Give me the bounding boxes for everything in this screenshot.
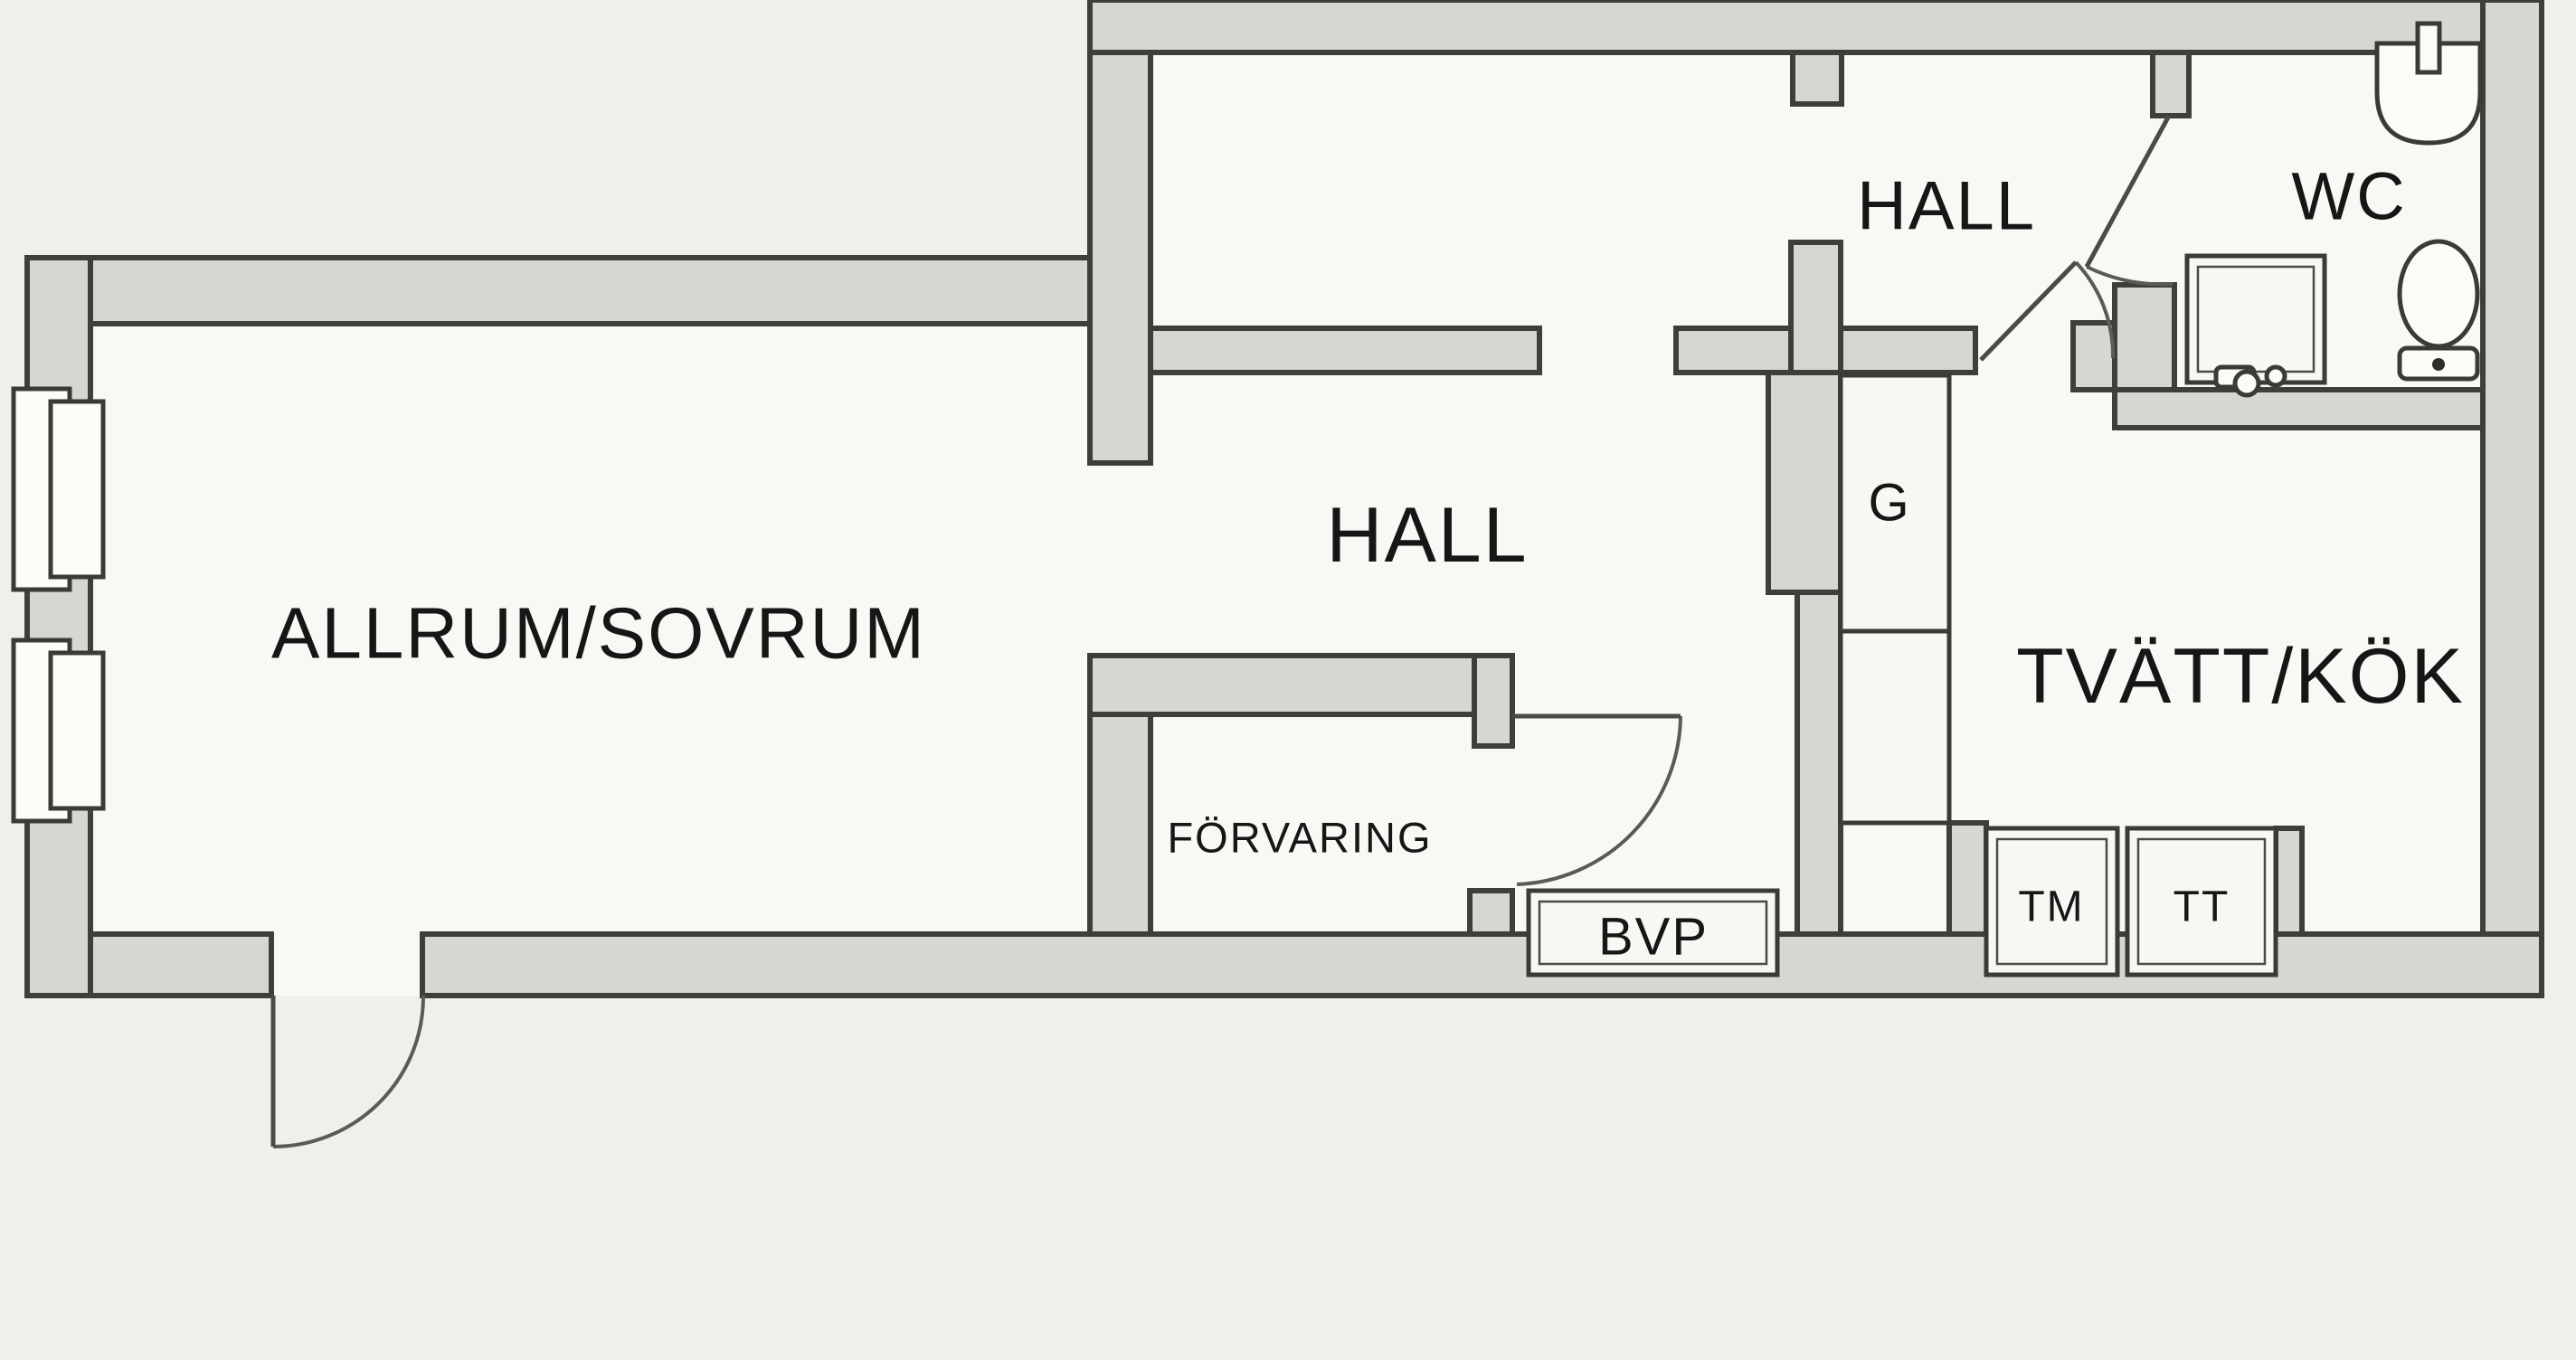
corridor-left-wall — [1090, 0, 1151, 463]
tvatt-door-jamb — [2073, 323, 2115, 390]
entrance-door-swing-arc — [273, 996, 423, 1147]
floorplan-page: ALLRUM/SOVRUMHALLHALLWCTVÄTT/KÖKFÖRVARIN… — [0, 0, 2576, 1360]
left-wall — [27, 258, 90, 996]
toilet-flush-icon — [2432, 358, 2445, 371]
top-wall-left — [27, 258, 1151, 324]
room-label-garderob: G — [1868, 474, 1910, 533]
shower — [2187, 256, 2325, 382]
room-label-hall-upper: HALL — [1857, 168, 2036, 245]
room-label-tvatt-kok: TVÄTT/KÖK — [2016, 633, 2465, 720]
g-closet-lower — [1841, 631, 1949, 823]
duct-notch — [1793, 52, 1842, 104]
room-label-forvaring: FÖRVARING — [1167, 814, 1432, 862]
shower-knob-icon — [2267, 367, 2285, 385]
forvaring-top-wall — [1090, 656, 1474, 714]
room-label-allrum-sovrum: ALLRUM/SOVRUM — [271, 593, 926, 674]
duct-wall-strip — [1797, 592, 1841, 934]
wc-bottom-wall — [2115, 390, 2483, 428]
toilet-bowl-icon — [2400, 241, 2477, 346]
tt-sliver-wall — [2276, 828, 2302, 934]
duct-wall-upper — [1791, 242, 1841, 373]
forvaring-door-jamb — [1474, 656, 1512, 746]
forvaring-right-wall — [1470, 891, 1512, 934]
corridor-top-wall — [1090, 0, 2542, 52]
room-label-tt: TT — [2173, 883, 2230, 931]
room-label-wc: WC — [2291, 159, 2406, 234]
room-label-bvp: BVP — [1598, 908, 1709, 967]
floorplan-svg: ALLRUM/SOVRUMHALLHALLWCTVÄTT/KÖKFÖRVARIN… — [0, 0, 2576, 1360]
tm-sliver-wall — [1949, 823, 1986, 934]
window-1-casement — [51, 401, 103, 577]
duct-wall-mid — [1768, 373, 1841, 592]
sink-tap-icon — [2418, 24, 2439, 72]
wc-left-wall — [2115, 285, 2174, 390]
wc-door-jamb — [2153, 52, 2189, 116]
room-label-hall-lower: HALL — [1326, 492, 1528, 579]
hall-north-wall-west — [1151, 328, 1539, 373]
shower-handle-icon — [2235, 372, 2259, 395]
window-2-casement — [51, 653, 103, 808]
room-label-tm: TM — [2018, 883, 2084, 931]
right-wall — [2483, 0, 2542, 996]
